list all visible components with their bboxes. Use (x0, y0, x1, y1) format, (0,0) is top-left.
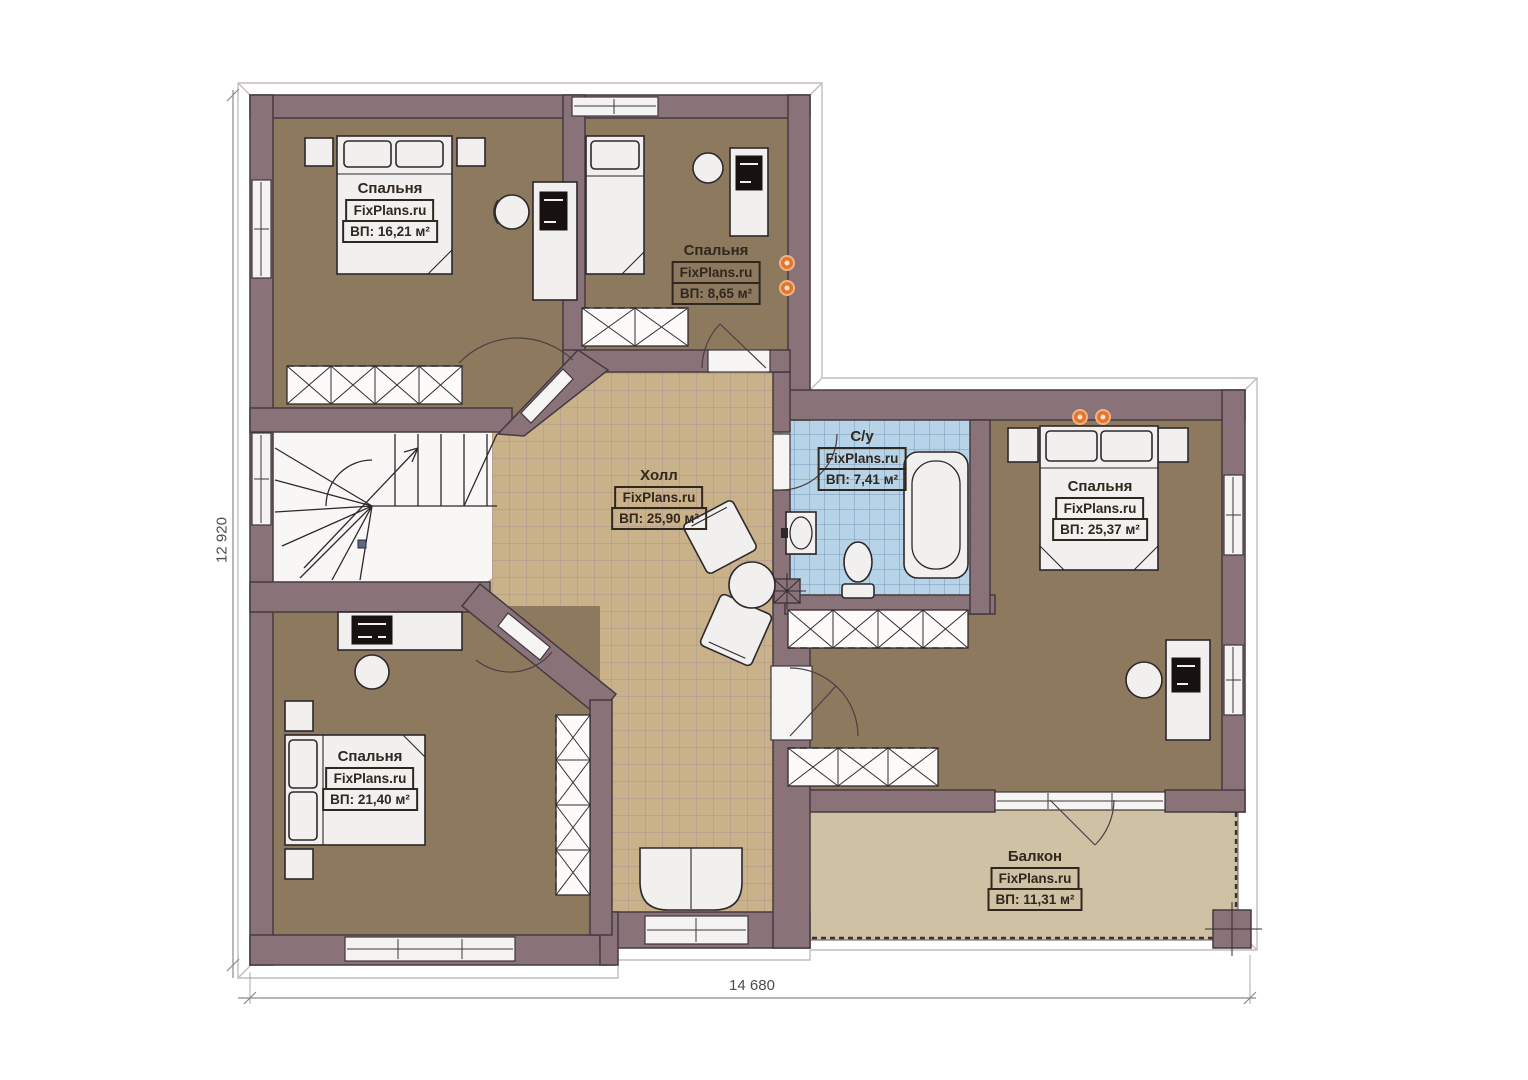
area-box: ВП: 16,21 м² (342, 220, 438, 243)
nightstand (1158, 428, 1188, 462)
wardrobe-right-bedroom-row1 (788, 610, 968, 648)
desk (533, 182, 577, 300)
room-label-bedroom-top-middle: Спальня FixPlans.ru ВП: 8,65 м² (672, 242, 761, 305)
room-label-bedroom-bottom-left: Спальня FixPlans.ru ВП: 21,40 м² (322, 748, 418, 811)
toilet (842, 542, 874, 598)
brand-box: FixPlans.ru (346, 199, 435, 222)
nightstand (305, 138, 333, 166)
area-box: ВП: 8,65 м² (672, 282, 760, 305)
chair (1126, 662, 1162, 698)
area-box: ВП: 11,31 м² (988, 888, 1083, 911)
sofa (640, 848, 742, 910)
brand-box: FixPlans.ru (326, 767, 415, 790)
room-name: Балкон (1008, 848, 1062, 865)
window-right-1 (1224, 475, 1243, 555)
window-left-stairwell (252, 433, 271, 525)
wardrobe-bedroom-bottom-left (556, 715, 590, 895)
room-name: Холл (640, 467, 678, 484)
brand-box: FixPlans.ru (1056, 497, 1145, 520)
room-name: Спальня (358, 180, 423, 197)
window-left-bedroom (252, 180, 271, 278)
area-box: ВП: 21,40 м² (322, 788, 418, 811)
chair (355, 655, 389, 689)
wardrobe-bedroom-top-middle (582, 308, 688, 346)
dimension-label-bottom: 14 680 (729, 977, 775, 994)
floor-stairwell (262, 432, 497, 592)
window-right-2 (1224, 645, 1243, 715)
floor-plan-canvas: Спальня FixPlans.ru ВП: 16,21 м² Спальня… (0, 0, 1528, 1080)
room-name: Спальня (1068, 478, 1133, 495)
room-label-bedroom-top-left: Спальня FixPlans.ru ВП: 16,21 м² (342, 180, 438, 243)
window-top-middle-bedroom (572, 97, 658, 116)
brand-box: FixPlans.ru (672, 261, 761, 284)
room-label-hall: Холл FixPlans.ru ВП: 25,90 м² (611, 467, 707, 530)
wardrobe-bedroom-top-left (287, 366, 462, 404)
window-bottom-left-bedroom (345, 937, 515, 961)
area-box: ВП: 25,37 м² (1052, 518, 1148, 541)
sink (781, 512, 816, 554)
dimension-label-left: 12 920 (214, 517, 231, 563)
room-name: Спальня (684, 242, 749, 259)
desk (730, 148, 768, 236)
nightstand (285, 849, 313, 879)
room-name: Спальня (338, 748, 403, 765)
room-label-bedroom-right: Спальня FixPlans.ru ВП: 25,37 м² (1052, 478, 1148, 541)
brand-box: FixPlans.ru (615, 486, 704, 509)
nightstand (285, 701, 313, 731)
brand-box: FixPlans.ru (991, 867, 1080, 890)
chair (693, 153, 723, 183)
brand-box: FixPlans.ru (818, 447, 907, 470)
chair (495, 195, 529, 229)
balcony-column (1205, 902, 1262, 956)
room-label-balcony: Балкон FixPlans.ru ВП: 11,31 м² (988, 848, 1083, 911)
round-table (729, 562, 775, 608)
wardrobe-right-bedroom-row2 (788, 748, 938, 786)
desk (1166, 640, 1210, 740)
single-bed (586, 136, 644, 274)
area-box: ВП: 25,90 м² (611, 507, 707, 530)
bathtub (904, 452, 968, 578)
nightstand (1008, 428, 1038, 462)
area-box: ВП: 7,41 м² (818, 468, 906, 491)
nightstand (457, 138, 485, 166)
room-label-bathroom: С/у FixPlans.ru ВП: 7,41 м² (818, 428, 907, 491)
desk (338, 612, 462, 650)
window-hall-bottom (645, 916, 748, 944)
room-name: С/у (850, 428, 873, 445)
